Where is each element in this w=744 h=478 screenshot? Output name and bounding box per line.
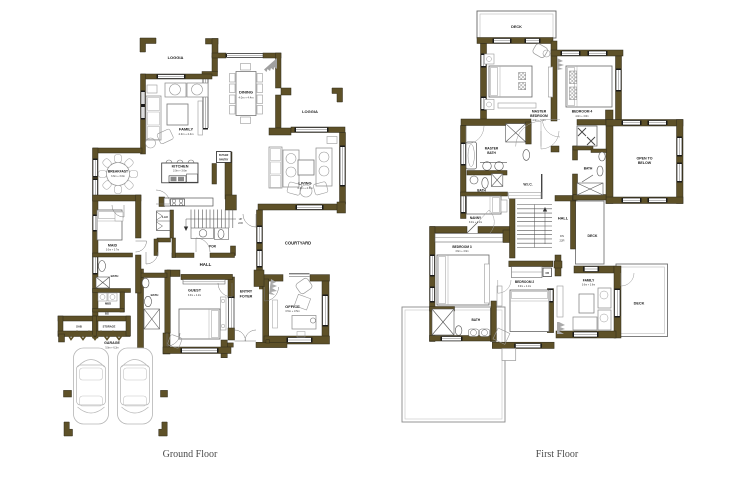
svg-text:GUEST: GUEST [188,289,202,293]
svg-text:3.0m + 3.6m: 3.0m + 3.6m [173,170,187,173]
svg-text:LOGGIA: LOGGIA [168,55,184,60]
svg-text:BEDROOM 2: BEDROOM 2 [515,280,535,284]
svg-text:3.0m + 2.1m: 3.0m + 2.1m [469,221,482,224]
svg-text:3.6m + 3.6m: 3.6m + 3.6m [455,250,468,253]
svg-text:BATH: BATH [584,167,593,171]
svg-text:DECK: DECK [588,234,598,238]
svg-text:DECK: DECK [511,25,522,29]
svg-text:LIVING: LIVING [298,181,311,186]
svg-text:FAMILY: FAMILY [583,279,595,283]
svg-text:MBD: MBD [105,302,111,306]
svg-text:Ground Floor: Ground Floor [163,449,218,460]
svg-text:6.0m + 4.5m: 6.0m + 4.5m [297,186,313,190]
svg-text:4.0m + 4.4m: 4.0m + 4.4m [238,96,254,100]
svg-text:3.6m + 3.6m: 3.6m + 3.6m [582,283,595,286]
svg-text:UP: UP [239,217,243,221]
svg-text:LOGGIA: LOGGIA [302,109,318,114]
svg-text:FAMILY: FAMILY [179,127,194,132]
svg-text:DECK: DECK [634,302,645,306]
svg-text:FOYER: FOYER [240,295,253,299]
svg-text:POR: POR [209,245,217,249]
svg-text:3.6m + 3.6m: 3.6m + 3.6m [111,175,125,178]
svg-text:22R: 22R [238,221,243,225]
svg-text:COURTYARD: COURTYARD [285,241,311,246]
svg-text:BATH: BATH [471,318,480,322]
svg-text:W.I.C.: W.I.C. [523,183,532,187]
svg-text:LAU: LAU [162,215,168,219]
svg-text:ENTRY: ENTRY [240,290,253,294]
svg-text:4.3m + 4.4m: 4.3m + 4.4m [178,132,194,136]
svg-text:BEDROOM 3: BEDROOM 3 [452,245,472,249]
svg-text:5.0m + 6.2m: 5.0m + 6.2m [105,347,118,350]
svg-text:OFFICE: OFFICE [285,304,300,309]
svg-text:CB: CB [545,272,549,275]
svg-text:BATH: BATH [487,151,496,155]
svg-text:BEDROOM: BEDROOM [530,114,548,118]
svg-text:3.5m + 3.5m: 3.5m + 3.5m [285,309,300,313]
svg-text:HALL: HALL [200,262,212,267]
svg-text:PANTRY: PANTRY [219,159,229,162]
svg-text:DINING: DINING [239,90,253,95]
svg-text:GARAGE: GARAGE [104,341,120,345]
svg-text:DN: DN [560,234,564,238]
svg-text:BATH: BATH [151,293,159,297]
svg-text:BATH: BATH [111,274,119,278]
svg-text:STORAGE: STORAGE [103,325,116,329]
svg-text:KITCHEN: KITCHEN [172,165,189,169]
svg-text:MAID: MAID [108,244,118,248]
svg-text:BG: BG [105,312,109,316]
svg-text:OPEN TO: OPEN TO [636,157,652,161]
svg-text:3.9m + 4.1m: 3.9m + 4.1m [518,285,531,288]
svg-text:3.0m + 3.7m: 3.0m + 3.7m [106,249,119,252]
svg-text:3.6m + 4.2m: 3.6m + 4.2m [188,294,201,297]
svg-text:BELOW: BELOW [638,161,652,165]
svg-text:BEDROOM 4: BEDROOM 4 [572,110,593,114]
svg-text:First Floor: First Floor [536,449,579,460]
svg-text:22R: 22R [560,239,565,243]
svg-text:4.0m + 3.8m: 4.0m + 3.8m [575,115,588,118]
svg-text:BREAKFAST: BREAKFAST [108,170,128,174]
svg-text:SAB: SAB [76,325,82,329]
svg-text:BUTLER: BUTLER [219,155,229,157]
svg-text:HALL: HALL [558,216,569,221]
